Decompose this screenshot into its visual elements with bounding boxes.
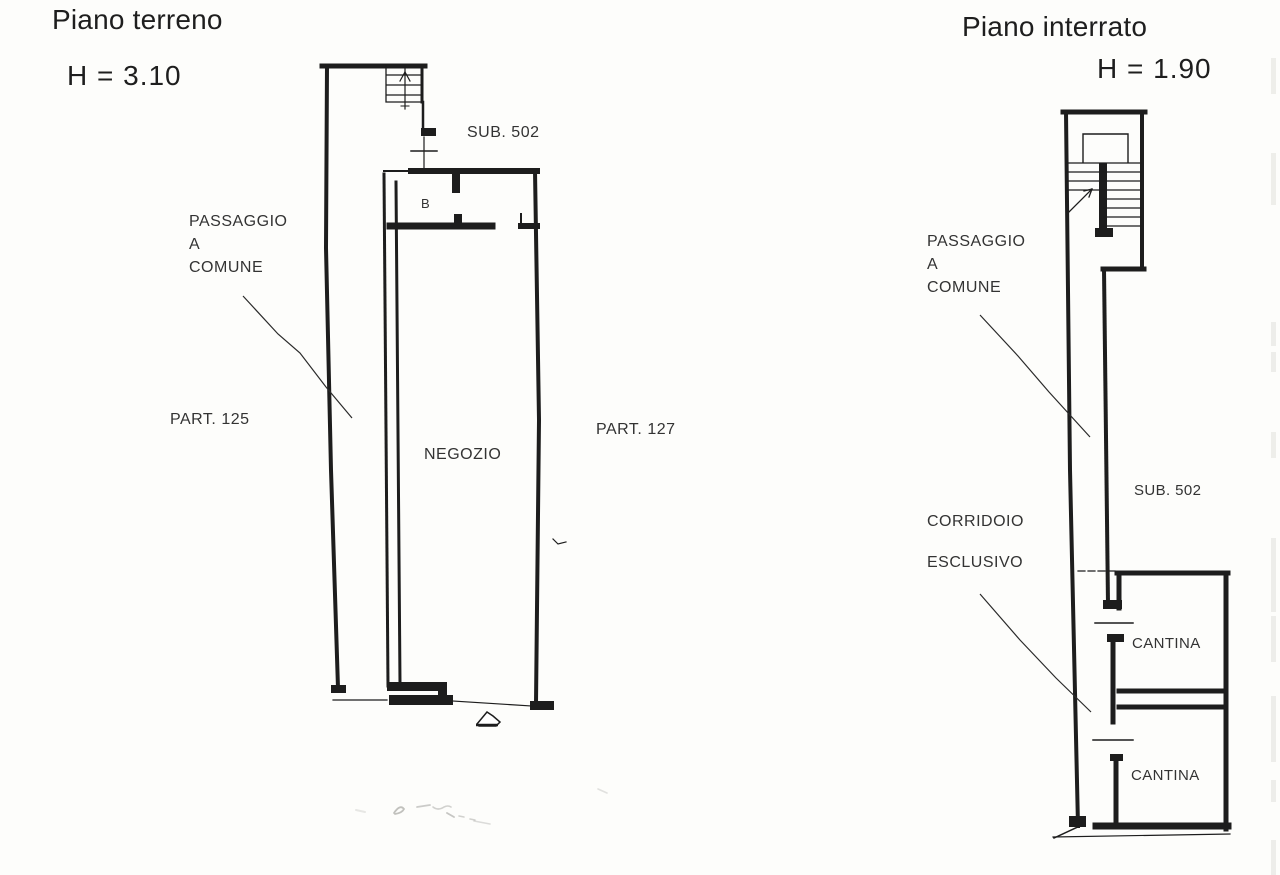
- leader-line-passaggio-interrato: [980, 315, 1090, 437]
- corridoio-label: CORRIDOIO: [927, 514, 1024, 530]
- scanned-floor-plan-page: Piano terreno H = 3.10 SUB. 502 PASSAGGI…: [0, 0, 1280, 875]
- passaggio-a-comune-label-interrato: PASSAGGIO A COMUNE: [927, 234, 1025, 303]
- cantina-lower-label: CANTINA: [1131, 768, 1200, 783]
- height-note-terreno: H = 3.10: [67, 62, 182, 90]
- passaggio-line2: A: [189, 237, 287, 253]
- part-125-label: PART. 125: [170, 412, 250, 428]
- scan-edge-artifacts: [1271, 58, 1276, 875]
- part-127-label: PART. 127: [596, 422, 676, 438]
- plan-title-terreno: Piano terreno: [52, 6, 223, 34]
- passaggio-line1: PASSAGGIO: [189, 214, 287, 230]
- passaggio-line2: A: [927, 257, 1025, 273]
- room-letter-b: B: [421, 197, 430, 210]
- pencil-smudges: [356, 789, 607, 824]
- passaggio-line1: PASSAGGIO: [927, 234, 1025, 250]
- ground-floor-plan-walls: [322, 66, 566, 710]
- leader-line-passaggio-terreno: [243, 296, 352, 418]
- esclusivo-label: ESCLUSIVO: [927, 555, 1023, 571]
- passaggio-line3: COMUNE: [927, 280, 1025, 296]
- basement-floor-plan-walls: [1053, 112, 1230, 838]
- entrance-marker-triangle: [476, 712, 500, 726]
- height-note-interrato: H = 1.90: [1097, 55, 1212, 83]
- plan-title-interrato: Piano interrato: [962, 13, 1147, 41]
- sub-502-label-terreno: SUB. 502: [467, 125, 539, 141]
- passaggio-line3: COMUNE: [189, 260, 287, 276]
- cantina-upper-label: CANTINA: [1132, 636, 1201, 651]
- passaggio-a-comune-label-terreno: PASSAGGIO A COMUNE: [189, 214, 287, 283]
- negozio-room-label: NEGOZIO: [424, 447, 501, 463]
- sub-502-label-interrato: SUB. 502: [1134, 483, 1201, 498]
